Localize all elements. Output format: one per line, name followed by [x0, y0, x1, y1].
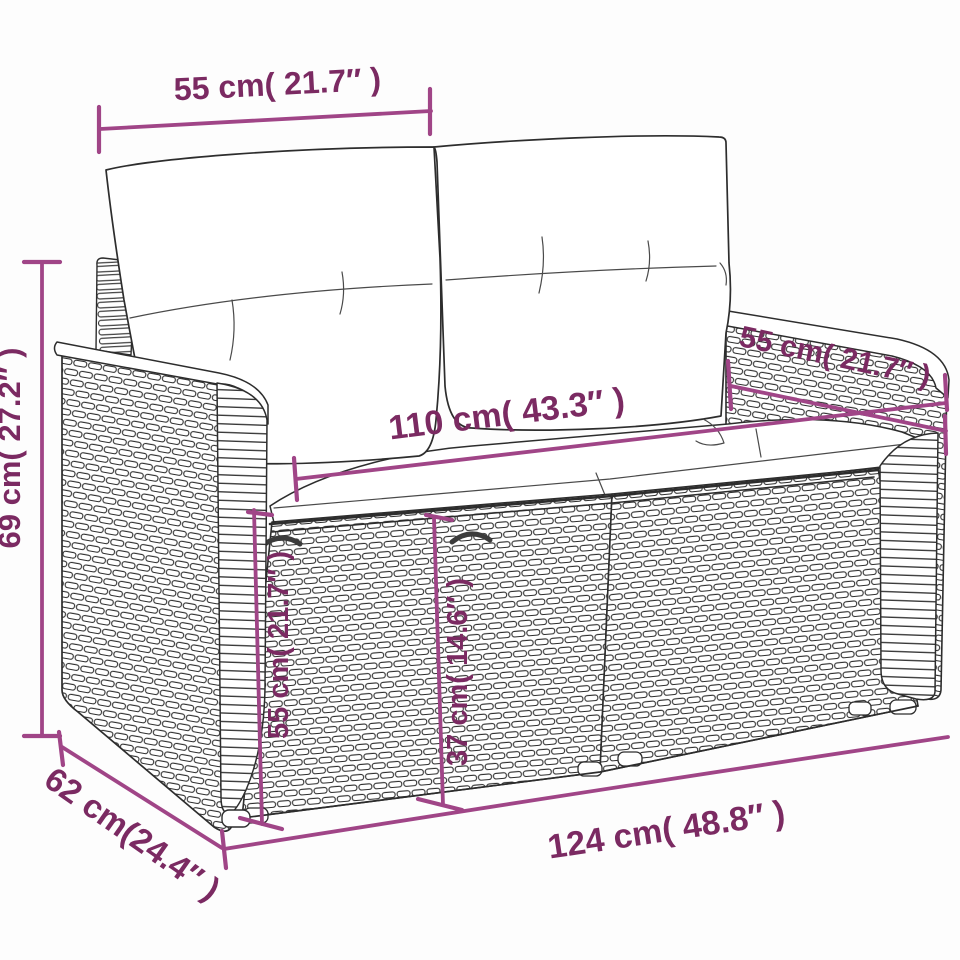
- dim-label-front-height: 55 cm( 21.7″ ): [263, 551, 295, 739]
- diagram-canvas: 55 cm( 21.7″ ) 69 cm( 27.2″ ) 55 cm( 21.…: [0, 0, 960, 960]
- dim-label-seat-height: 37 cm( 14.6″ ): [442, 578, 474, 766]
- dim-label-back-height: 69 cm( 27.2″ ): [0, 348, 27, 549]
- sofa-dimension-drawing: 55 cm( 21.7″ ) 69 cm( 27.2″ ) 55 cm( 21.…: [0, 0, 960, 960]
- sofa-foot: [849, 702, 871, 715]
- right-arm-roll: [880, 433, 938, 700]
